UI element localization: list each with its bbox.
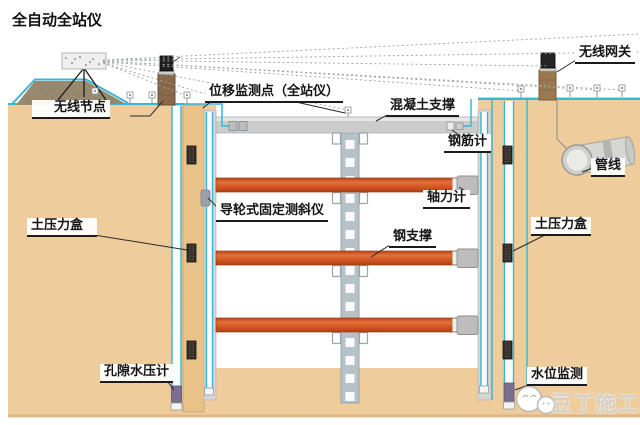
steel-strut-3	[216, 316, 478, 335]
concrete-support-beam	[216, 117, 478, 133]
water-level-sensor-tip	[504, 383, 514, 403]
label-water-level: 水位监测	[527, 367, 587, 386]
label-fixed-inclinometer: 导轮式固定测斜仪	[216, 203, 328, 222]
wireless-gateway-device-icon	[539, 53, 556, 100]
label-axial-force-meter: 轴力计	[423, 190, 470, 209]
label-rebar-meter: 钢筋计	[444, 134, 491, 153]
label-earth-pressure-left: 土压力盒	[27, 218, 97, 237]
label-pipeline: 管线	[591, 158, 625, 177]
lattice-king-post-column	[341, 133, 359, 403]
watermark-text: 豆丁施工	[551, 388, 639, 418]
label-displacement-point: 位移监测点（全站仪）	[205, 84, 343, 103]
steel-strut-2	[216, 249, 478, 268]
label-steel-support: 钢支撑	[389, 229, 436, 248]
label-wireless-node: 无线节点	[32, 100, 110, 119]
label-pore-water-pressure: 孔隙水压计	[100, 364, 173, 383]
label-concrete-support: 混凝土支撑	[386, 98, 459, 117]
diagram-page: 全自动全站仪 无线节点 位移监测点（全站仪） 混凝土支撑 钢筋计 无线网关 管线…	[0, 0, 640, 425]
label-earth-pressure-right: 土压力盒	[531, 217, 591, 236]
label-wireless-gateway: 无线网关	[575, 45, 635, 64]
label-total-station: 全自动全站仪	[12, 12, 102, 29]
